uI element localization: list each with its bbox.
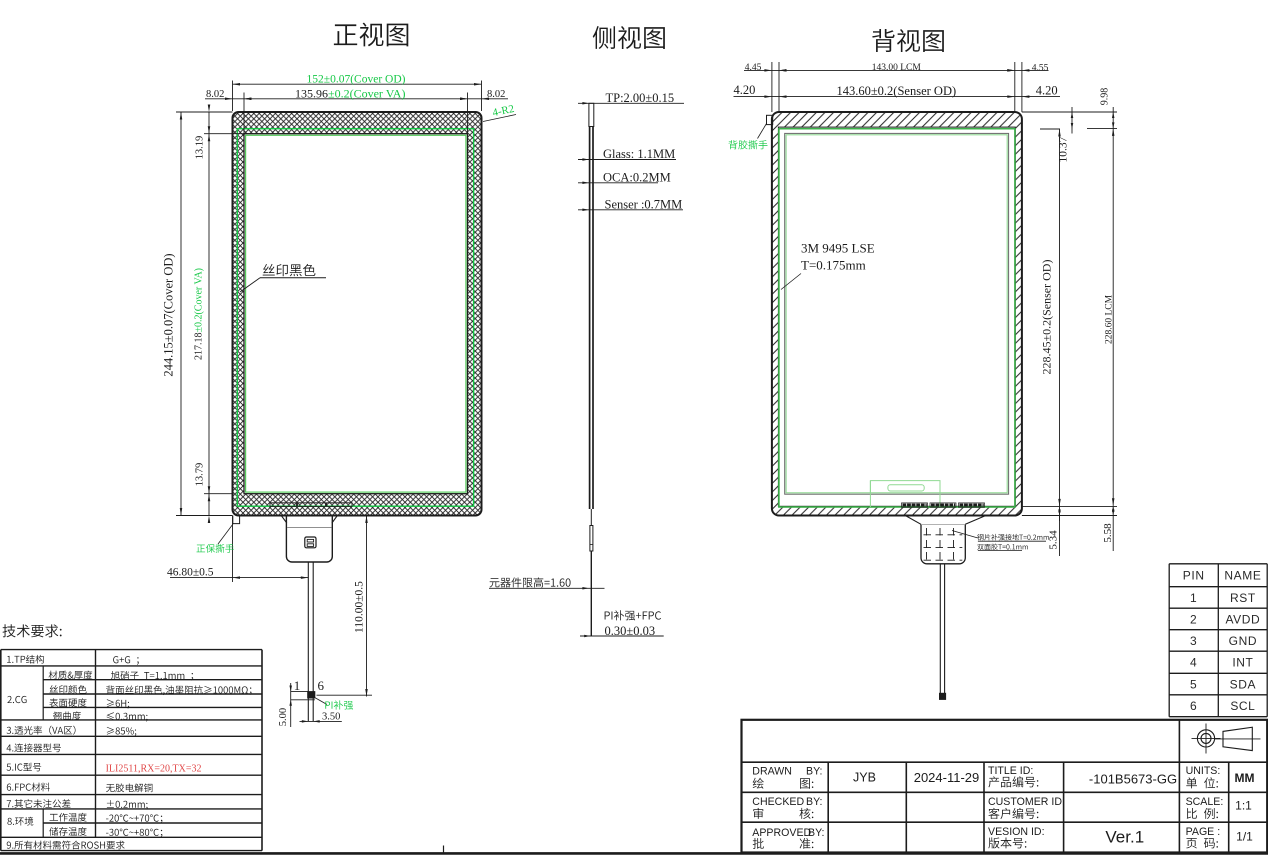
svg-text:0.30±0.03: 0.30±0.03 bbox=[605, 624, 656, 638]
svg-text:4: 4 bbox=[1190, 656, 1197, 670]
svg-text:8.02: 8.02 bbox=[487, 89, 505, 100]
svg-text:228.45±0.2(Senser OD): 228.45±0.2(Senser OD) bbox=[1040, 260, 1054, 375]
svg-text:10.37: 10.37 bbox=[1058, 136, 1070, 162]
svg-text:INT: INT bbox=[1232, 656, 1253, 670]
svg-text:8.02: 8.02 bbox=[206, 89, 224, 100]
svg-text:4.20: 4.20 bbox=[1036, 84, 1058, 98]
svg-text:APPROVED: APPROVED bbox=[752, 827, 811, 839]
svg-text:DRAWN: DRAWN bbox=[752, 766, 792, 778]
svg-text:244.15±0.07(Cover OD): 244.15±0.07(Cover OD) bbox=[161, 253, 175, 376]
svg-text:2024-11-29: 2024-11-29 bbox=[914, 770, 980, 785]
svg-text:3M 9495 LSE: 3M 9495 LSE bbox=[801, 240, 875, 255]
svg-text:228.60 LCM: 228.60 LCM bbox=[1104, 294, 1114, 344]
svg-text:ILI2511,RX=20,TX=32: ILI2511,RX=20,TX=32 bbox=[106, 763, 202, 774]
svg-text:TITLE ID:: TITLE ID: bbox=[988, 765, 1033, 777]
svg-text:JYB: JYB bbox=[853, 771, 876, 785]
svg-text:VESION ID:: VESION ID: bbox=[988, 826, 1045, 838]
svg-text:217.18±0.2(Cover VA): 217.18±0.2(Cover VA) bbox=[194, 268, 205, 360]
svg-text:3: 3 bbox=[1190, 634, 1197, 648]
svg-text:2: 2 bbox=[1190, 612, 1197, 626]
svg-text:NAME: NAME bbox=[1224, 569, 1261, 583]
svg-text:UNITS:: UNITS: bbox=[1186, 765, 1221, 777]
svg-text:6: 6 bbox=[1190, 699, 1197, 713]
svg-text:46.80±0.5: 46.80±0.5 bbox=[167, 566, 214, 578]
svg-text:CUSTOMER ID:: CUSTOMER ID: bbox=[988, 796, 1065, 808]
svg-text:9.98: 9.98 bbox=[1099, 88, 1110, 106]
svg-text:1: 1 bbox=[1190, 591, 1197, 605]
svg-text:143.60±0.2(Senser OD): 143.60±0.2(Senser OD) bbox=[836, 84, 956, 98]
svg-text:BY:: BY: bbox=[806, 766, 823, 778]
svg-text:PIN: PIN bbox=[1183, 569, 1205, 583]
svg-text:SCL: SCL bbox=[1230, 699, 1255, 713]
svg-text:T=0.175mm: T=0.175mm bbox=[801, 258, 866, 273]
svg-text:1: 1 bbox=[294, 678, 301, 693]
svg-text:152±0.07(Cover OD): 152±0.07(Cover OD) bbox=[307, 74, 406, 86]
svg-text:Senser :0.7MM: Senser :0.7MM bbox=[605, 197, 683, 211]
svg-text:110.00±0.5: 110.00±0.5 bbox=[353, 581, 365, 633]
svg-text:AVDD: AVDD bbox=[1225, 612, 1260, 626]
svg-text:4.45: 4.45 bbox=[745, 63, 762, 73]
svg-text:1:1: 1:1 bbox=[1235, 799, 1252, 813]
svg-text:SCALE:: SCALE: bbox=[1186, 796, 1224, 808]
svg-text:1/1: 1/1 bbox=[1236, 830, 1253, 844]
svg-text:5.58: 5.58 bbox=[1102, 523, 1114, 543]
svg-text:PAGE :: PAGE : bbox=[1186, 826, 1221, 838]
svg-text:-101B5673-GG: -101B5673-GG bbox=[1089, 772, 1177, 787]
svg-text:OCA:0.2MM: OCA:0.2MM bbox=[603, 171, 671, 185]
svg-text:4.20: 4.20 bbox=[734, 83, 756, 97]
svg-text:143.00 LCM: 143.00 LCM bbox=[872, 63, 922, 73]
svg-text:5.00: 5.00 bbox=[278, 708, 289, 726]
svg-text:13.19: 13.19 bbox=[195, 136, 206, 160]
svg-text:BY:: BY: bbox=[806, 796, 823, 808]
svg-text:GND: GND bbox=[1229, 634, 1257, 648]
svg-text:Ver.1: Ver.1 bbox=[1105, 828, 1144, 847]
svg-text:SDA: SDA bbox=[1230, 677, 1256, 691]
svg-text:5: 5 bbox=[1190, 677, 1197, 691]
svg-text:3.50: 3.50 bbox=[322, 711, 340, 722]
svg-text:4.55: 4.55 bbox=[1032, 63, 1049, 73]
svg-text:CHECKED: CHECKED bbox=[752, 796, 804, 808]
svg-text:TP:2.00±0.15: TP:2.00±0.15 bbox=[606, 91, 675, 105]
svg-text:MM: MM bbox=[1235, 771, 1255, 785]
svg-text:Glass: 1.1MM: Glass: 1.1MM bbox=[603, 147, 675, 161]
svg-text:6: 6 bbox=[318, 678, 325, 693]
svg-text:135.96±0.2(Cover VA): 135.96±0.2(Cover VA) bbox=[295, 86, 405, 100]
svg-text:BY:: BY: bbox=[808, 827, 825, 839]
svg-text:13.79: 13.79 bbox=[195, 463, 206, 487]
svg-text:5.34: 5.34 bbox=[1047, 530, 1059, 550]
svg-text:RST: RST bbox=[1230, 591, 1256, 605]
